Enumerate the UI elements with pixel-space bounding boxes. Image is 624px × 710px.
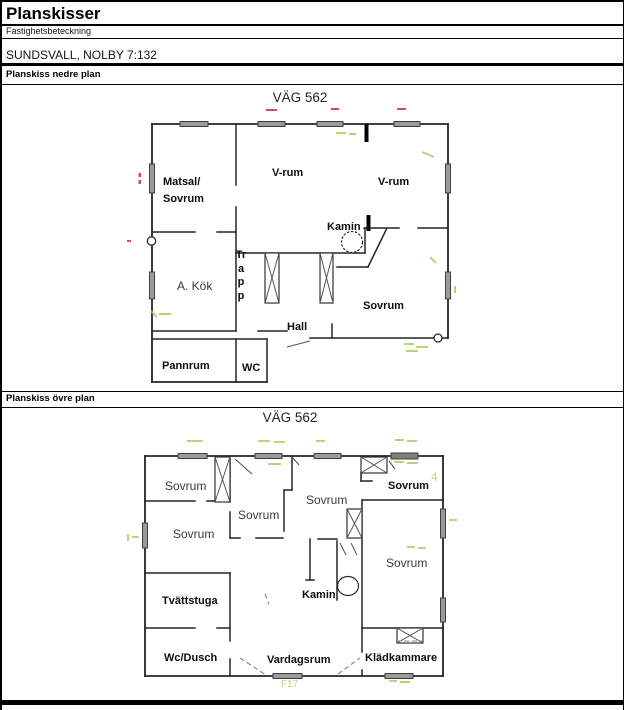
floor1-windows: [150, 122, 451, 300]
room-label-wc-dusch: Wc/Dusch: [164, 650, 217, 667]
room-label-vardagsrum: Vardagsrum: [267, 652, 331, 669]
divider: [0, 38, 624, 39]
room-label-tvattstuga: Tvättstuga: [162, 593, 218, 610]
floor1-stair-hatch-boxes: [265, 253, 333, 303]
section-header-lower-plan: Planskiss nedre plan: [6, 69, 101, 80]
property-designation-value: SUNDSVALL, NOLBY 7:132: [6, 48, 157, 62]
faint-annotation-four: 4: [431, 470, 438, 484]
room-label-matsal-sovrum: Matsal/ Sovrum: [163, 174, 204, 208]
bottom-border: [0, 700, 624, 705]
room-label-wc: WC: [242, 360, 260, 377]
room-label-vrum-right: V-rum: [378, 174, 409, 191]
room-label-matsal-line1: Matsal/: [163, 176, 200, 188]
planskisser-document: Planskisser Fastighetsbeteckning SUNDSVA…: [0, 0, 624, 710]
floor1-plan-drawing: [0, 84, 624, 391]
room-label-sovrum-nw: Sovrum: [165, 479, 206, 493]
room-label-sovrum-ctop: Sovrum: [306, 493, 347, 507]
property-designation-label: Fastighetsbeteckning: [6, 26, 91, 36]
section-header-upper-plan: Planskiss övre plan: [6, 393, 95, 404]
room-label-kamin-f2: Kamin: [302, 587, 336, 604]
room-label-vrum-center: V-rum: [272, 165, 303, 182]
divider: [0, 24, 624, 26]
room-label-sovrum-mid: Sovrum: [238, 508, 279, 522]
room-label-kamin-f1: Kamin: [327, 219, 361, 236]
room-label-sovrum-w: Sovrum: [173, 527, 214, 541]
room-label-hall: Hall: [287, 319, 307, 336]
floor1-chimney-marks: [365, 124, 371, 231]
faint-annotation-f17: F17: [281, 679, 298, 690]
divider: [0, 391, 624, 392]
room-label-sovrum-e: Sovrum: [386, 556, 427, 570]
page-title: Planskisser: [6, 4, 101, 24]
floor1-faint-marks: [127, 109, 455, 351]
room-label-pannrum: Pannrum: [162, 358, 210, 375]
divider-thick: [0, 63, 624, 66]
room-label-trapp: Trapp: [235, 249, 247, 303]
top-border: [0, 0, 624, 2]
floor2-fireplace-circle: [338, 577, 359, 596]
room-label-sovrum-f1: Sovrum: [363, 298, 404, 315]
room-label-sovrum-ne: Sovrum: [388, 478, 429, 495]
room-label-kok: A. Kök: [177, 279, 212, 293]
floor1-walls: [152, 124, 448, 382]
room-label-kladkammare: Klädkammare: [365, 650, 437, 667]
room-label-matsal-line2: Sovrum: [163, 193, 204, 205]
